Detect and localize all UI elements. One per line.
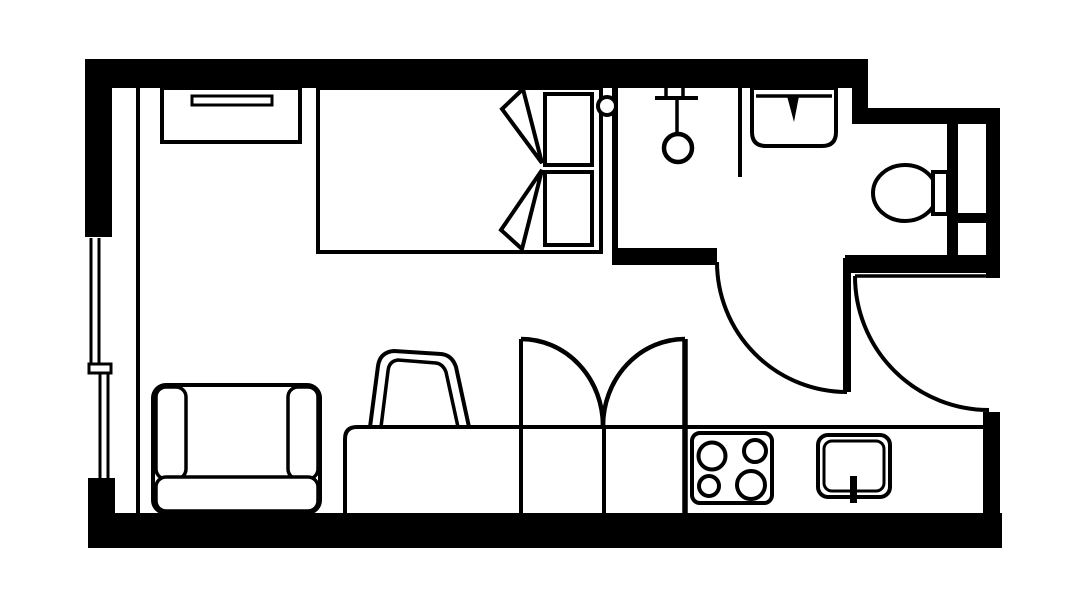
entry-door-arc [855,276,989,410]
toilet-cistern [933,172,948,214]
wall-top [85,59,856,88]
bathroom-door-arc [717,262,847,392]
wall-left [85,59,112,237]
wall-bathroom-bottom-right [845,255,1000,273]
floor-plan-canvas [0,0,1092,614]
kitchenette [692,433,890,503]
tilted-chair-inner [381,360,458,427]
burner-bottom-left [699,476,719,496]
wall-shaft-crossbar [958,213,987,223]
bathroom [655,88,948,221]
wall-top-step [852,59,868,112]
pillow-bottom [545,172,592,245]
fold-out-arc-right [603,339,685,426]
burner-top-left [699,443,726,470]
bathroom-door-leaf [843,258,851,392]
sink-faucet-icon [850,476,857,503]
dresser-handle [192,96,272,105]
wall-top-right-section [852,108,998,124]
toilet-bowl [873,165,937,221]
wall-right-upper [986,108,1000,278]
burner-top-right [744,440,766,462]
wall-bottom [88,513,1002,548]
door-swings [717,262,989,410]
burner-bottom-right [737,471,765,499]
shower-head-icon [664,134,692,162]
wall-knob [598,97,616,115]
wall-bathroom-bottom-left [612,248,717,265]
window-sill-break [89,364,111,373]
armchair-arm-right [288,387,318,479]
wall-left-bottom-stub [88,478,115,514]
armchair-seat-cushion [156,477,318,511]
sleeping-area [162,88,616,252]
pillow-top [545,94,592,165]
wall-right-lower [983,412,1000,548]
fold-out-arc-left [521,339,603,426]
armchair-arm-left [156,387,186,479]
floor-plan-drawing [0,0,1092,614]
